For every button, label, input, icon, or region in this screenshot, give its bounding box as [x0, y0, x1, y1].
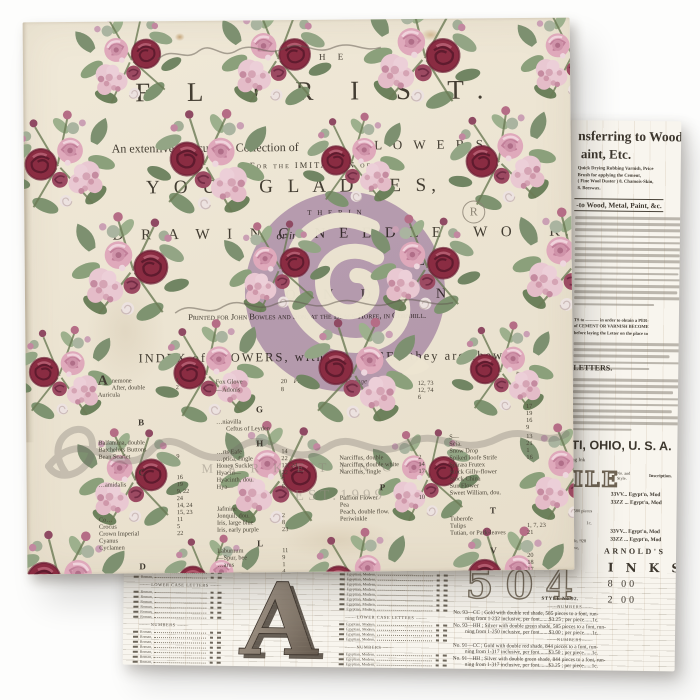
- illegible-text-line: [574, 290, 677, 294]
- illegible-text-line: [573, 397, 681, 401]
- illegible-text-line: [575, 247, 682, 251]
- ledger-cell: Egyptian, Modern,: [346, 637, 375, 641]
- index-entry-page: 19: [526, 410, 532, 417]
- ledger-cell: [155, 596, 207, 598]
- ledger-cell: [217, 652, 221, 653]
- illegible-text-line: [573, 415, 682, 419]
- ledger-heading: LOWER CASE LETTERS: [140, 582, 221, 588]
- ledger-cell: [210, 597, 213, 598]
- index-entry-page: 13, 24: [281, 462, 297, 469]
- registered-trademark-icon: R: [462, 200, 485, 223]
- index-section-letter: G: [256, 404, 263, 414]
- ledger-cell: [339, 654, 344, 655]
- illegible-text-line: [573, 403, 681, 407]
- ledger-cell: Egyptian, Modern,: [346, 652, 375, 656]
- ledger-cell: [210, 607, 213, 608]
- index-entry-page: 9: [282, 554, 285, 561]
- ledger-cell: [436, 635, 439, 636]
- index-entry-page: 2: [418, 454, 421, 461]
- ledger-cell: [340, 574, 345, 575]
- ledger-cell: [444, 580, 448, 581]
- ledger-cell: [443, 665, 447, 666]
- index-entry-page: 8: [282, 519, 285, 526]
- ledger-heading: NUMBERS: [139, 622, 187, 628]
- ledger-cell: [339, 599, 344, 600]
- ledger-cell: [436, 665, 439, 666]
- style-no-line: STYLE No 92.: [541, 597, 578, 602]
- index-entry-name: Narciffus, fingle: [340, 468, 382, 475]
- ledger-cell: [133, 606, 138, 607]
- index-entry-name: Crown Imperial: [99, 530, 139, 537]
- ledger-cell: [378, 589, 433, 591]
- index-entry-page: 9, 22: [177, 488, 190, 495]
- illegible-text-line: [574, 342, 682, 346]
- credit-lines: Quick Drying Rubbing Varnish, PriceBrush…: [577, 166, 653, 193]
- index-entry-page: 18: [527, 559, 533, 566]
- ledger-cell: [340, 594, 345, 595]
- ledger-cell: [210, 612, 213, 613]
- ledger-cell: Egyptian, Modern,: [347, 592, 376, 596]
- ledger-cell: [444, 590, 448, 591]
- illegible-text-line: [574, 297, 681, 301]
- index-entry-name: Iris, early purple: [217, 526, 259, 533]
- index-entry-name: Ceftus of Leyden: [226, 425, 270, 432]
- spec-row: 33ZZ ... Egypt'n, Mod: [610, 537, 661, 544]
- spec-row: 33VV... Egypt'n, Mod: [610, 529, 661, 536]
- index-entry-page: 24: [177, 495, 183, 502]
- ledger-cell: [443, 660, 447, 661]
- illegible-text-line: [575, 216, 681, 220]
- ledger-cell: [154, 656, 206, 658]
- ledger-cell: Egyptian, Modern,: [346, 657, 375, 661]
- ledger-cell: [339, 624, 344, 625]
- index-entry-page: 20: [281, 378, 287, 385]
- newsprint-paragraph: [574, 216, 681, 310]
- index-entry-name: Hyacinth, dou.: [217, 476, 254, 483]
- ledger-row: Egyptian, Modern,: [337, 667, 449, 671]
- ledger-cell: [217, 662, 221, 663]
- ledger-cell: [339, 669, 344, 670]
- ledger-cell: Roman,: [140, 640, 152, 644]
- ledger-cell: [217, 637, 221, 638]
- illegible-text-line: [574, 278, 681, 282]
- ledger-cell: Roman,: [140, 615, 152, 619]
- ledger-cell: Roman,: [140, 650, 152, 654]
- ledger-cell: Roman,: [140, 655, 152, 659]
- headline-paint-etc: aint, Etc.: [581, 146, 631, 163]
- ledger-cell: Roman,: [140, 635, 152, 639]
- index-entry-page: 2: [176, 384, 179, 391]
- illegible-text-line: [573, 390, 673, 394]
- ledger-cell: [378, 579, 433, 581]
- ledger-cell: [154, 641, 206, 643]
- illegible-text-line: [573, 421, 682, 425]
- credit-line: Brush for applying the Cement,: [578, 173, 654, 179]
- ledger-cell: [444, 595, 448, 596]
- ledger-cell: [217, 657, 221, 658]
- ledger-heading-label: NUMBERS: [149, 622, 177, 627]
- ledger-cell: [134, 591, 139, 592]
- index-entry-page: 21: [526, 440, 532, 447]
- ledger-cell: [133, 661, 138, 662]
- ledger-cell: [211, 577, 214, 578]
- spec-header-no: No. and Style.: [617, 471, 633, 482]
- spec-row: 33VV... Egypt'n, Mod: [611, 492, 662, 499]
- ledger-cell: [443, 600, 447, 601]
- index-entry-page: 20: [527, 552, 533, 559]
- ledger-cell: [217, 597, 221, 598]
- index-entry-name: —Adonis: [216, 387, 241, 394]
- index-entry-name: Periwinkle: [340, 515, 367, 522]
- ledger-heading-label: NUMBERS: [355, 644, 383, 649]
- ledger-cell: [217, 647, 221, 648]
- ledger-cell: [378, 599, 433, 601]
- index-entry-page: 5: [177, 523, 180, 530]
- ledger-cell: Egyptian, Modern,: [346, 597, 375, 601]
- ledger-cell: [217, 602, 221, 603]
- ledger-cell: [210, 642, 213, 643]
- illegible-text-line: [573, 354, 669, 358]
- ledger-cell: [443, 605, 447, 606]
- ledger-cell: Egyptian, Modern,: [346, 662, 375, 666]
- ledger-cell: [377, 659, 432, 661]
- index-entry-name: Fox Glove: [216, 378, 243, 385]
- index-entry-name: Cyclamen: [99, 545, 125, 552]
- ledger-cell: [133, 601, 138, 602]
- ledger-cell: [436, 630, 439, 631]
- illegible-text-line: [574, 284, 681, 288]
- index-entry-name: After, double: [112, 384, 145, 391]
- ledger-cell: Roman,: [140, 595, 152, 599]
- index-entry-page: 7: [282, 476, 285, 483]
- index-entry-page: 17: [526, 403, 532, 410]
- index-entry-page: 17: [419, 468, 425, 475]
- credit-line: Quick Drying Rubbing Varnish, Price: [578, 166, 654, 172]
- ledger-cell: Roman,: [141, 575, 153, 579]
- index-entry-page: 16: [177, 474, 183, 481]
- index-entry-page: 23: [282, 526, 288, 533]
- illegible-text-line: [573, 378, 681, 382]
- ledger-cell: [133, 616, 138, 617]
- index-entry-page: 1: [282, 561, 285, 568]
- ledger-cell: [154, 636, 206, 638]
- ledger-cell: [154, 631, 206, 633]
- ledger-cell: [436, 660, 439, 661]
- ledger-heading: NUMBERS: [345, 644, 393, 650]
- ledger-cell: [133, 611, 138, 612]
- ledger-cell: [377, 669, 432, 671]
- ledger-cell: [154, 616, 206, 618]
- ledger-cell: [133, 646, 138, 647]
- ledger-cell: [155, 591, 207, 593]
- ledger-cell: Roman,: [140, 630, 152, 634]
- index-entry-page: 10: [419, 494, 425, 501]
- ledger-cell: [340, 589, 345, 590]
- ledger-cell: [210, 632, 213, 633]
- ledger-cell: [210, 647, 213, 648]
- index-entry-page: 1, 7, 23: [527, 522, 546, 529]
- index-entry-page: 1: [526, 447, 529, 454]
- illegible-text-line: [575, 266, 682, 270]
- ledger-cell: [436, 605, 439, 606]
- index-entry-page: 22: [177, 530, 183, 537]
- spec-header-inscription: Inscription.: [649, 473, 672, 478]
- ledger-cell: Roman,: [141, 590, 153, 594]
- numbers-heading-1: NUMBERS: [547, 604, 592, 610]
- illegible-text-line: [575, 222, 681, 226]
- index-entry-name: Tutian, or Park-leaves: [450, 529, 506, 536]
- ink-fragment: ng Ink: [572, 458, 585, 463]
- cent-fragment: 1c.: [586, 520, 591, 525]
- pieces-fragment: 580 pieces: [574, 508, 593, 513]
- spec-row: 33ZZ ... Egypt'n, Mod: [611, 500, 662, 507]
- ledger-cell: [155, 606, 207, 608]
- ledger-cell: [436, 610, 439, 611]
- index-entry-page: 11: [282, 547, 288, 554]
- ledger-cell: Egyptian, Modern,: [346, 667, 375, 671]
- ledger-cell: [134, 576, 139, 577]
- ledger-cell: [377, 634, 432, 636]
- city-line: TI, OHIO, U. S. A.: [571, 438, 671, 453]
- ledger-cell: [378, 594, 433, 596]
- arnolds-brand: ARNOLD'S: [604, 546, 665, 556]
- index-section-letter: L: [257, 538, 263, 548]
- ledger-cell: [217, 607, 221, 608]
- ledger-cell: [443, 625, 447, 626]
- ledger-cell: Egyptian, Modern,: [346, 602, 375, 606]
- index-section-letter: P: [380, 482, 386, 492]
- ledger-cell: [339, 629, 344, 630]
- index-entry-page: 19: [177, 481, 183, 488]
- ledger-heading-label: LOWER CASE LETTERS: [355, 614, 416, 620]
- ledger-cell: Egyptian, Modern,: [346, 607, 375, 611]
- bold-fragment: TS to ——— in order to obtain a PER-: [574, 317, 649, 323]
- ledger-cell: [436, 625, 439, 626]
- ledger-cell: Roman,: [140, 610, 152, 614]
- ledger-cell: [210, 617, 213, 618]
- illegible-text-line: [573, 409, 672, 413]
- ledger-cell: [154, 651, 206, 653]
- ledger-cell: [210, 657, 213, 658]
- ledger-cell: [217, 612, 221, 613]
- ledger-cell: [339, 639, 344, 640]
- ledger-cell: [218, 577, 222, 578]
- ledger-cell: [211, 592, 214, 593]
- illegible-text-line: [575, 235, 681, 239]
- ledger-cell: [377, 664, 432, 666]
- index-entry-name: …amidalis: [99, 482, 127, 489]
- ledger-cell: [443, 630, 447, 631]
- ledger-cell: Roman,: [140, 600, 152, 604]
- ledger-cell: [133, 596, 138, 597]
- credit-line: ( Fine Wool Duster ) 8. Chamois-Skin,: [578, 179, 654, 185]
- ledger-cell: [154, 661, 206, 663]
- ledger-cell: [210, 637, 213, 638]
- index-entry-name: Sweet William, dou.: [450, 489, 501, 496]
- index-section-letter: V: [490, 545, 497, 555]
- ledger-cell: [218, 592, 222, 593]
- index-section-letter: A: [98, 374, 108, 390]
- ledger-cell: [436, 600, 439, 601]
- ledger-cell: [133, 631, 138, 632]
- illegible-text-line: [574, 348, 682, 352]
- ledger-cell: [339, 664, 344, 665]
- numbers-heading-2: NUMBERS: [547, 637, 592, 643]
- ledger-cell: [436, 640, 439, 641]
- illegible-text-line: [575, 228, 681, 232]
- index-entry-page: 11: [177, 516, 183, 523]
- index-entry-page: 6: [418, 394, 421, 401]
- ledger-cell: [340, 584, 345, 585]
- ledger-cell: [377, 639, 432, 641]
- index-entry-name: Auricula: [98, 392, 120, 399]
- ledger-cell: [154, 646, 206, 648]
- illegible-text-line: [574, 272, 678, 276]
- index-entry-page: 12, 74: [418, 387, 434, 394]
- ledger-cell: [155, 601, 207, 603]
- ledger-cell: [339, 659, 344, 660]
- index-entry-page: 22: [282, 469, 288, 476]
- ledger-cell: Roman,: [140, 660, 152, 664]
- ledger-cell: [443, 635, 447, 636]
- illegible-text-line: [573, 428, 632, 431]
- index-entry-page: 13: [526, 433, 532, 440]
- index-entry-page: 8: [281, 386, 284, 393]
- ledger-cell: [339, 634, 344, 635]
- index-entry-page: 14: [418, 461, 424, 468]
- illegible-text-line: [575, 241, 681, 245]
- ledger-cell: [437, 580, 440, 581]
- ledger-cell: Egyptian, Modern,: [346, 627, 375, 631]
- spec-table-rows: 33VV... Egypt'n, Mod33ZZ ... Egypt'n, Mo…: [611, 492, 662, 509]
- ledger-cell: [437, 590, 440, 591]
- ledger-cell: [217, 642, 221, 643]
- illegible-text-line: [575, 253, 680, 257]
- index-entry-page: 15, 23: [177, 509, 193, 516]
- index-entry-name: Bean Scarlet: [98, 453, 130, 460]
- index-entry-page: 6: [282, 483, 285, 490]
- ledger-cell: [444, 575, 448, 576]
- index-section-letter: T: [490, 505, 496, 515]
- ledger-cell: [133, 651, 138, 652]
- illegible-text-line: [575, 259, 682, 263]
- credit-line: 8. Beeswax.: [577, 186, 653, 192]
- ledger-cell: [444, 585, 448, 586]
- index-entry-name: …arus: [217, 562, 234, 569]
- index-entry-page: 21: [527, 529, 533, 536]
- ledger-cell: [340, 579, 345, 580]
- ledger-cell: Egyptian, Modern,: [347, 577, 376, 581]
- ledger-cell: Egyptian, Modern,: [346, 622, 375, 626]
- newsprint-paragraph: [573, 378, 682, 435]
- ledger-cell: [443, 640, 447, 641]
- ledger-cell: [436, 655, 439, 656]
- ledger-cell: [155, 611, 207, 613]
- ledger-cell: [443, 610, 447, 611]
- ledger-cell: Roman,: [140, 605, 152, 609]
- index-entry-page: 22: [281, 455, 287, 462]
- ledger-cell: [210, 662, 213, 663]
- ledger-cell: Egyptian, Modern,: [346, 632, 375, 636]
- ledger-cell: [377, 654, 432, 656]
- ledger-cell: [217, 617, 221, 618]
- ledger-cell: [210, 602, 213, 603]
- ledger-cell: [133, 656, 138, 657]
- bold-fragment: before laying the Letter on the place to: [574, 330, 649, 336]
- ledger-cell: Egyptian, Modern,: [347, 587, 376, 591]
- bold-fragments: TS to ——— in order to obtain a PER-of CE…: [574, 317, 649, 337]
- index-entry-page: 16: [526, 454, 532, 461]
- ledger-cell: [378, 584, 433, 586]
- ledger-cell: Egyptian, Modern,: [347, 582, 376, 586]
- index-section-letter: C: [138, 467, 145, 477]
- headline-transferring: nsferring to Wood,: [578, 128, 681, 145]
- fragment-n: — N: [678, 515, 681, 520]
- index-entry-page: 16: [526, 417, 532, 424]
- ledger-cell: [443, 655, 447, 656]
- index-entry-page: 14: [281, 448, 287, 455]
- index-section-letter: H: [256, 438, 263, 448]
- ledger-cell: [339, 604, 344, 605]
- ledger-cell: [437, 595, 440, 596]
- ledger-cell: [339, 609, 344, 610]
- spec-table-rows-2: 33VV... Egypt'n, Mod33ZZ ... Egypt'n, Mo…: [610, 529, 661, 546]
- index-entry-page: 9: [526, 424, 529, 431]
- ledger-cell: [217, 632, 221, 633]
- index-entry-page: 2: [282, 512, 285, 519]
- fragment-l: — L: [679, 466, 681, 471]
- ledger-cell: [437, 585, 440, 586]
- ledger-heading-label: LOWER CASE LETTERS: [150, 582, 211, 588]
- index-section-letter: B: [138, 417, 144, 427]
- bold-fragment: of CEMENT OR VARNISH BECOME: [574, 323, 649, 329]
- floral-sheet-front: H E F L O R I S T. An extenfive and curi…: [23, 18, 575, 575]
- ledger-cell: Roman,: [140, 645, 152, 649]
- ledger-cell: [377, 629, 432, 631]
- scrapbook-paper-product-photo: nsferring to Wood, aint, Etc. Quick Dryi…: [0, 0, 700, 700]
- index-section-letter: D: [139, 561, 146, 571]
- ledger-cell: [133, 641, 138, 642]
- index-entry-page: 9: [176, 453, 179, 460]
- index-entry-name: Paffion Flower: [340, 494, 378, 501]
- ledger-cell: [377, 624, 432, 626]
- ledger-cell: [378, 609, 433, 611]
- index-entry-page: 1: [176, 377, 179, 384]
- ledger-cell: [378, 574, 433, 576]
- illegible-text-line: [574, 303, 654, 307]
- ledger-cell: Egyptian, Modern,: [347, 572, 376, 576]
- ledger-heading: LOWER CASE LETTERS: [345, 614, 426, 620]
- index-entry-name: Hya—: [217, 484, 234, 491]
- ledger-cell: [436, 670, 439, 671]
- style-outline-letters: ILE: [573, 466, 620, 492]
- ledger-cell: [133, 636, 138, 637]
- ledger-cell: [437, 575, 440, 576]
- letters-heading: LETTERS.: [573, 363, 612, 372]
- ledger-cell: [378, 604, 433, 606]
- heading-wood-metal-paint: -to Wood, Metal, Paint, &c.: [574, 198, 664, 212]
- ledger-cell: [443, 670, 447, 671]
- ledger-cell: [210, 652, 213, 653]
- ledger-cell: [155, 576, 207, 578]
- illegible-text-line: [573, 384, 681, 388]
